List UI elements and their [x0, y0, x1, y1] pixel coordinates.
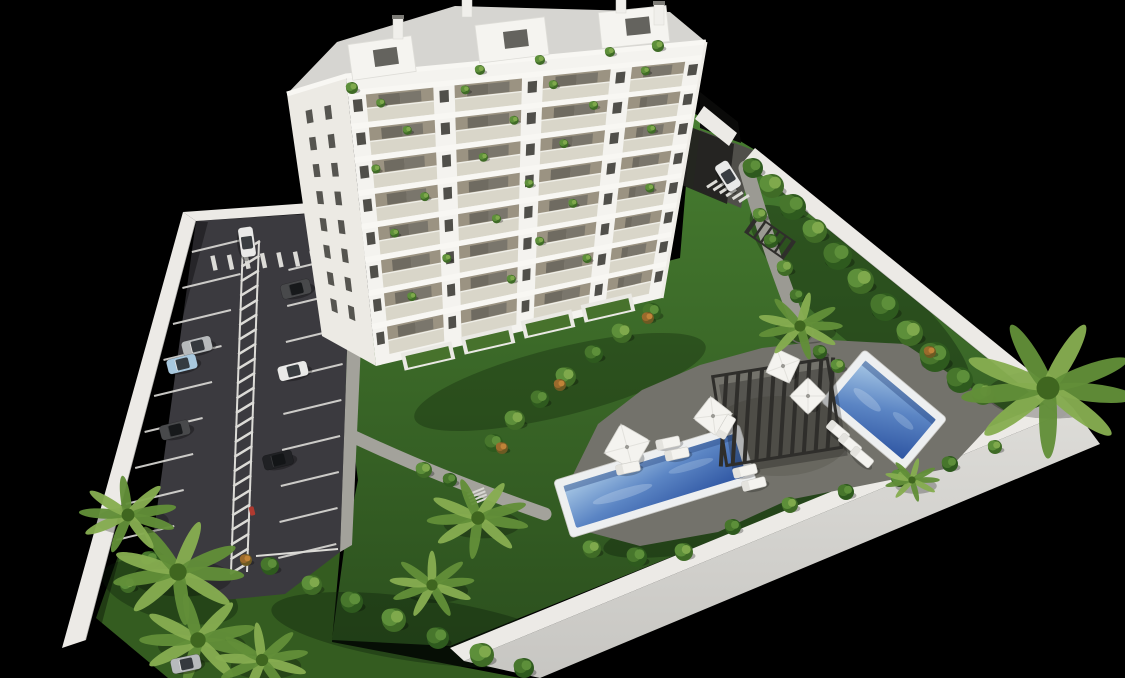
chimney: [392, 15, 404, 39]
window: [376, 331, 385, 345]
window: [615, 72, 625, 84]
penthouse-window: [373, 47, 399, 67]
chimney: [615, 0, 627, 13]
window: [612, 102, 622, 114]
window: [522, 300, 530, 313]
window: [527, 112, 536, 125]
window: [447, 283, 455, 296]
window: [523, 237, 532, 250]
window: [609, 132, 619, 144]
window: [528, 81, 538, 93]
window: [448, 316, 456, 330]
window: [366, 232, 375, 246]
penthouse-window: [503, 29, 529, 49]
window: [363, 199, 373, 212]
window: [524, 206, 533, 219]
window: [597, 253, 606, 266]
penthouse-window: [625, 16, 651, 35]
site-plan-render: [0, 0, 1125, 678]
rendering-canvas: Aerial 3D architectural rendering of a w…: [0, 0, 1125, 678]
window: [370, 265, 379, 279]
window: [360, 165, 370, 178]
window: [353, 99, 363, 112]
window: [594, 284, 603, 297]
window: [442, 154, 451, 167]
car-roof: [241, 235, 254, 249]
window: [441, 122, 450, 135]
window: [373, 298, 382, 312]
window: [606, 162, 616, 174]
window: [445, 219, 454, 232]
window: [526, 143, 535, 156]
chimney: [653, 1, 665, 25]
window: [600, 223, 609, 236]
balcony-door: [400, 91, 422, 104]
window: [356, 132, 366, 145]
window: [603, 193, 612, 205]
window: [522, 268, 530, 281]
chimney: [461, 0, 473, 17]
window: [439, 90, 449, 103]
window: [443, 187, 452, 200]
